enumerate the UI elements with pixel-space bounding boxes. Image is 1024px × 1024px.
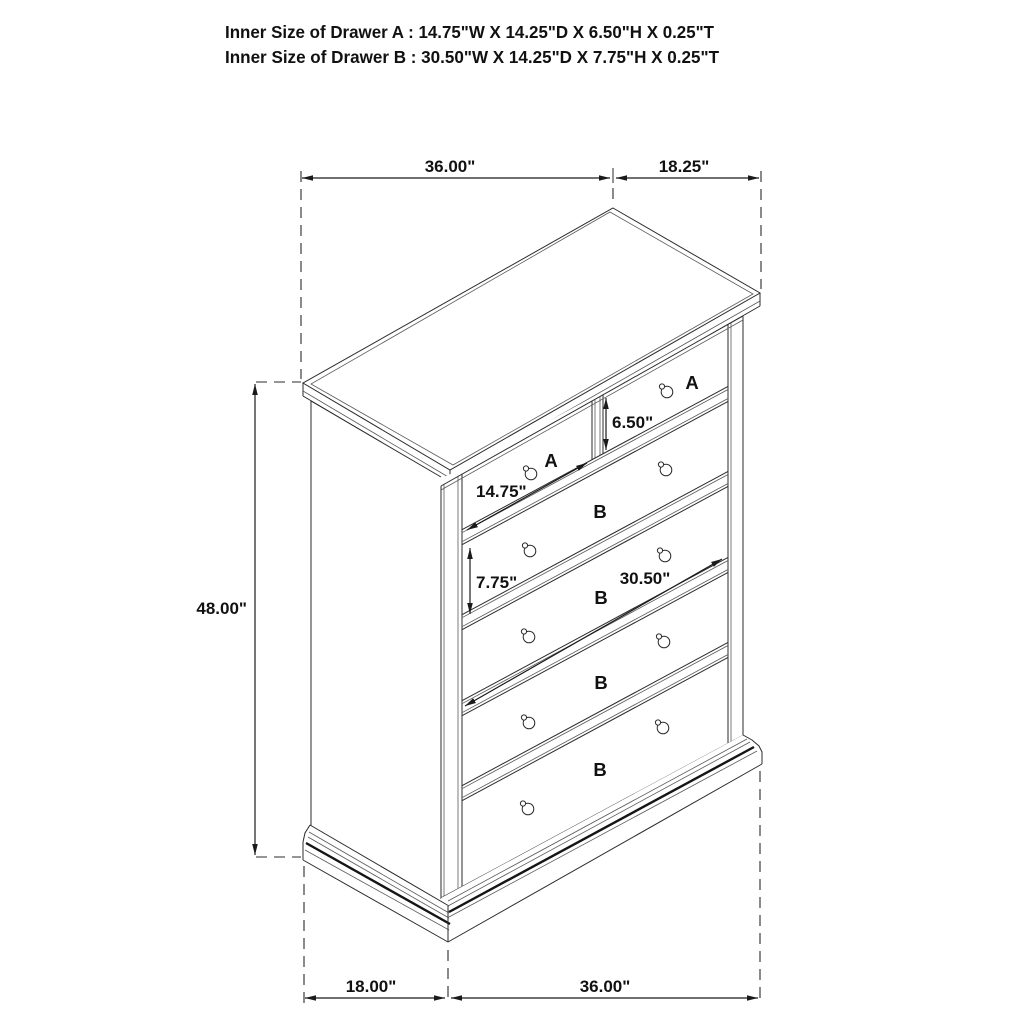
drawer-b-inner-size-text: Inner Size of Drawer B : 30.50"W X 14.25… [225, 47, 719, 67]
drawer-a-left-label: A [544, 450, 557, 471]
header-title: Inner Size of Drawer A : 14.75"W X 14.25… [225, 22, 719, 67]
drawer-b1-label: B [593, 501, 606, 522]
drawer-b3-label: B [594, 672, 607, 693]
diagram-page: Inner Size of Drawer A : 14.75"W X 14.25… [0, 0, 1024, 1024]
dim-top-depth-label: 18.25" [659, 157, 710, 176]
dim-drawer-b-width-label: 30.50" [620, 569, 671, 588]
dim-drawer-a-height-label: 6.50" [612, 413, 653, 432]
dim-bottom-depth-label: 18.00" [346, 977, 397, 996]
drawer-a-inner-size-text: Inner Size of Drawer A : 14.75"W X 14.25… [225, 22, 714, 42]
dim-height-label: 48.00" [196, 599, 247, 618]
dresser-dimension-diagram: Inner Size of Drawer A : 14.75"W X 14.25… [0, 0, 1024, 1024]
drawer-b4-label: B [593, 759, 606, 780]
dim-drawer-b-height-label: 7.75" [476, 573, 517, 592]
drawer-b2-label: B [594, 587, 607, 608]
dim-top-width-label: 36.00" [425, 157, 476, 176]
drawer-a-right-label: A [685, 372, 698, 393]
dim-bottom-width-label: 36.00" [580, 977, 631, 996]
cabinet-side-panel [311, 401, 444, 903]
dim-drawer-a-width-label: 14.75" [476, 482, 527, 501]
